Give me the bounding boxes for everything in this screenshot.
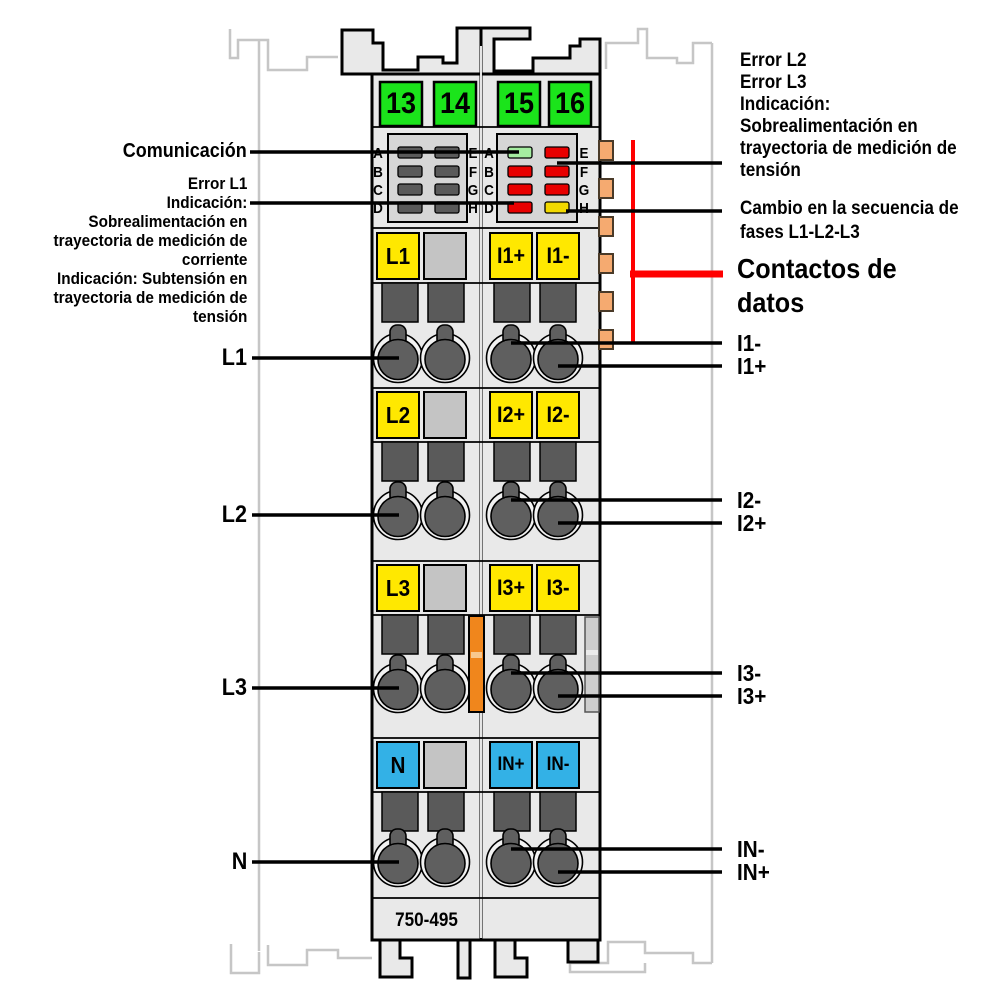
error-l2-l3-callout: Error L2 Error L3 Indicación: Sobrealime… (740, 50, 957, 182)
terminal-label-i2plus: I2+ (492, 392, 530, 438)
phase-callout-l2: L2 (222, 500, 247, 530)
left-module-cap (342, 28, 481, 74)
terminal-label-l3: L3 (379, 565, 417, 611)
terminal-label-i2minus: I2- (539, 392, 577, 438)
led-letter: H (467, 199, 480, 218)
callout-i3-plus: I3+ (737, 684, 766, 708)
terminal-label-l1: L1 (379, 233, 417, 279)
led-letter: B (483, 163, 496, 182)
right-module-foot2 (568, 940, 598, 962)
terminal-label-i1plus: I1+ (492, 233, 530, 279)
led-letter: D (483, 199, 496, 218)
callout-in-plus: IN+ (737, 860, 770, 884)
led-letter: G (578, 181, 591, 200)
clamp-number-15: 15 (500, 82, 538, 126)
clamp-number-13: 13 (382, 82, 420, 126)
callout-i1-plus: I1+ (737, 354, 766, 378)
data-contacts-callout: Contactos de datos (737, 252, 897, 320)
clamp-number-14: 14 (436, 82, 474, 126)
terminal-label-l2: L2 (379, 392, 417, 438)
terminal-label-inplus: IN+ (492, 742, 530, 788)
led-letter: B (372, 163, 385, 182)
terminal-label-i1minus: I1- (539, 233, 577, 279)
callout-i2-plus: I2+ (737, 511, 766, 535)
phase-callout-l1: L1 (222, 343, 247, 373)
phase-callout-n: N (231, 847, 247, 877)
part-number: 750-495 (377, 910, 475, 932)
right-module-foot (495, 940, 527, 977)
led-letter: A (372, 144, 385, 163)
led-letter: E (467, 144, 480, 163)
led-letter: G (467, 181, 480, 200)
led-letter: C (372, 181, 385, 200)
led-letter: H (578, 199, 591, 218)
callout-i3-minus: I3- (737, 661, 761, 685)
communication-callout: Comunicación (123, 140, 247, 162)
left-module-foot (380, 940, 412, 977)
led-letter: C (483, 181, 496, 200)
diagram-canvas: Comunicación Error L1 Indicación: Sobrea… (0, 0, 1004, 1004)
led-letter: E (578, 144, 591, 163)
led-phase-sequence (545, 202, 569, 213)
callout-in-minus: IN- (737, 837, 765, 861)
led-letter: D (372, 199, 385, 218)
led-letter: F (467, 163, 480, 182)
phase-sequence-callout: Cambio en la secuencia de fases L1-L2-L3 (740, 197, 959, 245)
clamp-number-16: 16 (551, 82, 589, 126)
error-l1-callout: Error L1 Indicación: Sobrealimentación e… (53, 174, 247, 326)
callout-i2-minus: I2- (737, 488, 761, 512)
right-module-cap (481, 28, 600, 74)
terminal-label-i3plus: I3+ (492, 565, 530, 611)
callout-i1-minus: I1- (737, 331, 761, 355)
data-contacts-bracket (630, 140, 723, 344)
led-letter: A (483, 144, 496, 163)
terminal-label-inminus: IN- (539, 742, 577, 788)
terminal-label-i3minus: I3- (539, 565, 577, 611)
terminal-label-n: N (379, 742, 417, 788)
orange-latch (469, 616, 484, 712)
led-error-l2 (545, 147, 569, 158)
phase-callout-l3: L3 (222, 673, 247, 703)
led-letter: F (578, 163, 591, 182)
left-module-foot2 (458, 940, 470, 978)
